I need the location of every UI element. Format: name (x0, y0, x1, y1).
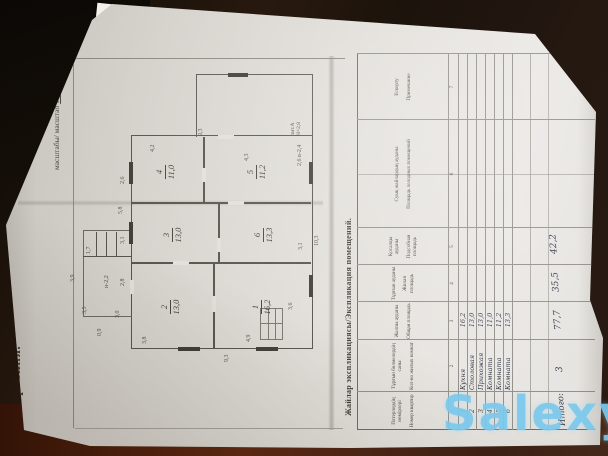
room-number: 6 (252, 228, 264, 242)
porch-step (106, 232, 107, 257)
paper-crease-vertical (328, 56, 335, 430)
dimension-label: 0,9 (97, 329, 103, 337)
dimension-label: 2,8 (120, 279, 126, 287)
header-kk: Тұрғын бөлмелердің саны (391, 341, 403, 391)
door-opening (212, 296, 216, 312)
dimension-label: 3,1 (298, 243, 304, 251)
header-ru: Площадь холодных помещений (406, 121, 412, 227)
table-grid-line (530, 54, 531, 430)
row-room-name: Комната (486, 340, 494, 390)
col-header-living-area: Тұрғын ауданы Жилая площадь (359, 266, 447, 301)
dimension-label: 9,3 (224, 355, 230, 363)
scale-caption: масштабы/ масштаб (52, 106, 61, 170)
row-room-area: 13,0 (477, 302, 485, 338)
header-ru: Жилая площадь (402, 266, 414, 301)
header-kk: Ескерту (394, 55, 400, 119)
litera-label: лит.А Н=2,8 (290, 122, 303, 136)
dimension-label: 5,8 (118, 207, 124, 215)
window-mark (228, 74, 248, 78)
dimension-label: 3,8 (142, 337, 148, 345)
dimension-label: 3,5 (82, 307, 88, 315)
header-ru: Кол-во жилых комнат (409, 341, 415, 391)
col-number: 5 (449, 228, 458, 265)
header-kk: Тұрғын ауданы (391, 266, 397, 301)
room-number: 1 (250, 300, 262, 314)
salexy-watermark: Salexy (442, 386, 608, 442)
table-grid-line (512, 54, 513, 430)
row-room-area: 11,0 (486, 302, 494, 338)
header-kk: Суық жайлардың ауданы (394, 121, 400, 227)
row-room-area: 13,3 (504, 302, 512, 338)
dimension-label: 9,3 (198, 129, 204, 137)
door-opening (218, 135, 234, 139)
header-kk: Жалпы ауданы (394, 303, 400, 339)
room-number: 2 (159, 300, 171, 314)
dimension-label: 3,6 (288, 303, 294, 311)
floor-plan: 1 16,2 2 13,0 3 13,0 4 11,0 5 11,2 6 13,… (78, 62, 323, 352)
row-room-name: Комната (495, 340, 503, 390)
col-header-note: Ескерту Примечание (359, 55, 447, 119)
window-mark (309, 162, 313, 184)
room-area: 11,0 (166, 159, 176, 185)
window-mark (178, 348, 200, 352)
header-kk: Қосалқы ауданы (388, 229, 400, 264)
dimension-label: 1,7 (86, 247, 92, 255)
col-number: 3 (449, 302, 458, 340)
litera-height: Н=2,8 (296, 122, 302, 136)
room-label-4: 4 11,0 (154, 159, 176, 185)
window-mark (129, 222, 133, 244)
col-number: 4 (449, 265, 458, 302)
room-area: 13,3 (264, 222, 274, 248)
col-header-room-count: Тұрғын бөлмелердің саны Кол-во жилых ком… (359, 341, 447, 391)
partition-wall (131, 262, 311, 264)
dimension-label: 4,3 (244, 154, 250, 162)
dimension-label: 3,9 (70, 275, 76, 283)
sheet-frame-line (75, 428, 343, 429)
sheet-frame-line (73, 58, 345, 59)
room-area: 16,2 (262, 294, 272, 320)
window-mark (309, 275, 313, 297)
porch-step (96, 232, 97, 257)
header-kk: Пәтерлердің нөмірлері (391, 393, 403, 429)
room-number: 5 (245, 165, 257, 179)
room-area: 13,0 (171, 294, 181, 320)
window-mark (256, 348, 278, 352)
row-room-name: Кухня (459, 340, 467, 390)
porch-step (116, 232, 117, 257)
litera-value: лит.А (290, 123, 296, 136)
table-grid-line (357, 54, 358, 430)
porch-partition (83, 256, 131, 257)
col-number: 2 (449, 340, 458, 392)
door-opening (173, 261, 189, 265)
partition-wall (218, 204, 220, 264)
room-number: 4 (154, 165, 166, 179)
room-label-5: 5 11,2 (245, 159, 267, 185)
room-label-3: 3 13,0 (161, 222, 183, 248)
dimension-label: 2,6 (120, 177, 126, 185)
totals-living-area: 35,5 (550, 272, 561, 293)
partition-wall (131, 202, 311, 204)
room-label-6: 6 13,3 (252, 222, 274, 248)
dimension-label: 3,1 (120, 237, 126, 245)
row-room-name: Прихожая (477, 340, 485, 390)
col-number: 6 (449, 120, 458, 228)
door-opening (130, 280, 134, 294)
dimension-label: 3,0 (115, 311, 121, 319)
row-room-area: 16,2 (459, 302, 467, 338)
col-header-total-area: Жалпы ауданы Общая площадь (359, 303, 447, 339)
header-ru: Подсобная площадь (406, 229, 418, 264)
col-header-apartment-number: Пәтерлердің нөмірлері Номер квартир (359, 393, 447, 429)
room-label-2: 2 13,0 (159, 294, 181, 320)
dimension-label: 4,9 (246, 335, 252, 343)
photo-of-floor-plan-document: План строения. масштабы/ масштаб 1 : 100 (0, 0, 608, 456)
totals-room-count: 3 (555, 366, 565, 372)
room-label-1: 1 16,2 (250, 294, 272, 320)
col-header-cold-area: Суық жайлардың ауданы Площадь холодных п… (359, 121, 447, 227)
door-opening (217, 238, 221, 252)
header-ru: Номер квартир (409, 393, 415, 429)
table-title: Жайлар экспликациясы/Экспликация помещен… (344, 218, 353, 416)
dimension-label: 10,3 (314, 236, 320, 247)
room-area: 11,2 (257, 159, 267, 185)
col-header-aux-area: Қосалқы ауданы Подсобная площадь (359, 229, 447, 264)
room-number: 3 (161, 228, 173, 242)
window-mark (129, 162, 133, 184)
row-room-name: Комната (504, 340, 512, 390)
header-ru: Общая площадь (406, 303, 412, 339)
row-room-area: 13,0 (468, 302, 476, 338)
door-opening (202, 168, 206, 182)
door-opening (228, 201, 244, 205)
dimension-label: 4,2 (150, 145, 156, 153)
dimension-label: 2,6 в-2,4 (297, 145, 303, 166)
row-room-area: 11,2 (495, 302, 503, 338)
explication-table: Жайлар экспликациясы/Экспликация помещен… (345, 52, 600, 430)
col-number: 7 (449, 54, 458, 120)
room-area: 13,0 (173, 222, 183, 248)
header-ru: Примечание (406, 55, 412, 119)
totals-total-area: 77,7 (552, 310, 563, 331)
row-room-name: Столовая (468, 340, 476, 390)
dimension-label: н-2,2 (104, 275, 110, 288)
totals-aux-area: 42,2 (548, 234, 559, 255)
sheet-frame-line (73, 56, 74, 428)
